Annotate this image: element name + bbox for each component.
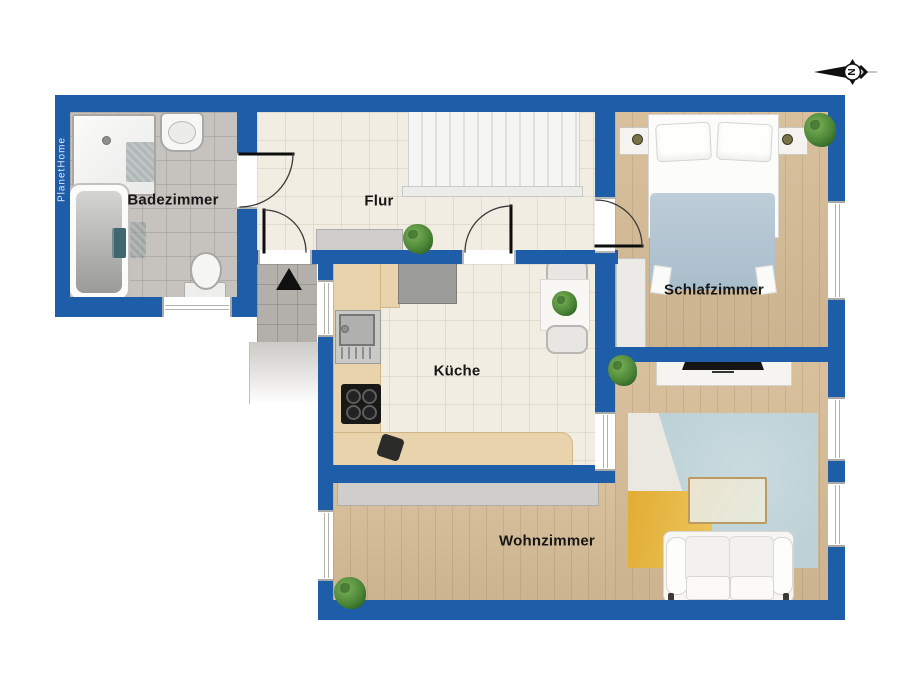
burner-icon bbox=[346, 405, 361, 420]
bath-mat bbox=[126, 142, 154, 182]
room-label-flur: Flur bbox=[364, 193, 393, 210]
room-label-kueche: Küche bbox=[434, 363, 481, 380]
door-opening-entrance bbox=[258, 250, 312, 264]
kitchen-counter bbox=[333, 432, 573, 467]
door-opening-bathroom bbox=[237, 153, 257, 209]
room-label-wohnzimmer: Wohnzimmer bbox=[499, 533, 595, 550]
window bbox=[162, 297, 232, 317]
door-opening-bedroom bbox=[595, 197, 615, 253]
entrance-steps bbox=[249, 342, 319, 404]
plant bbox=[334, 577, 366, 609]
plant bbox=[608, 355, 637, 386]
room-label-badezimmer: Badezimmer bbox=[127, 192, 218, 209]
staircase bbox=[408, 112, 580, 188]
tv-stand bbox=[712, 371, 734, 373]
lamp-icon bbox=[782, 134, 793, 145]
pass-through-opening bbox=[595, 412, 615, 471]
window bbox=[828, 482, 845, 547]
wall-segment bbox=[55, 95, 845, 112]
towel bbox=[112, 228, 126, 258]
sofa-seat bbox=[686, 576, 730, 600]
washbasin bbox=[160, 112, 204, 152]
dining-chair bbox=[546, 325, 588, 354]
compass-letter: N bbox=[847, 68, 858, 75]
floor-plan: PlanetHome Badezimmer Flur Schlafzimmer … bbox=[0, 0, 907, 680]
wall-segment bbox=[595, 249, 615, 412]
wall-segment bbox=[237, 250, 258, 264]
livingroom-sideboard bbox=[337, 481, 599, 506]
compass-icon: N bbox=[814, 59, 877, 85]
wall-segment bbox=[595, 112, 615, 197]
plant bbox=[552, 291, 577, 316]
staircase-edge bbox=[402, 186, 583, 197]
room-label-schlafzimmer: Schlafzimmer bbox=[664, 282, 764, 299]
sink-drainer bbox=[341, 347, 373, 359]
sofa-seat bbox=[730, 576, 774, 600]
tv bbox=[682, 361, 764, 370]
wall-segment bbox=[237, 112, 257, 153]
plant bbox=[804, 113, 836, 147]
wall-segment bbox=[318, 600, 845, 620]
hallway-sideboard bbox=[316, 229, 403, 252]
lamp-icon bbox=[632, 134, 643, 145]
faucet-icon bbox=[341, 325, 349, 333]
window bbox=[318, 280, 333, 337]
window bbox=[318, 510, 333, 581]
refrigerator bbox=[398, 262, 457, 304]
burner-icon bbox=[346, 389, 361, 404]
burner-icon bbox=[362, 405, 377, 420]
door-opening-kitchen bbox=[462, 250, 516, 264]
window bbox=[828, 397, 845, 461]
brand-watermark: PlanetHome bbox=[55, 100, 70, 240]
sofa bbox=[663, 531, 794, 603]
cooktop bbox=[341, 384, 381, 424]
coffee-table bbox=[688, 477, 767, 524]
wardrobe bbox=[616, 258, 646, 354]
plant bbox=[403, 224, 433, 254]
entrance-arrow-icon bbox=[276, 268, 302, 290]
window bbox=[828, 201, 845, 300]
sofa-armrest bbox=[771, 537, 793, 595]
shower-drain-icon bbox=[102, 136, 111, 145]
burner-icon bbox=[362, 389, 377, 404]
pillow bbox=[655, 122, 712, 163]
pillow bbox=[716, 122, 773, 163]
wall-segment bbox=[318, 465, 615, 483]
